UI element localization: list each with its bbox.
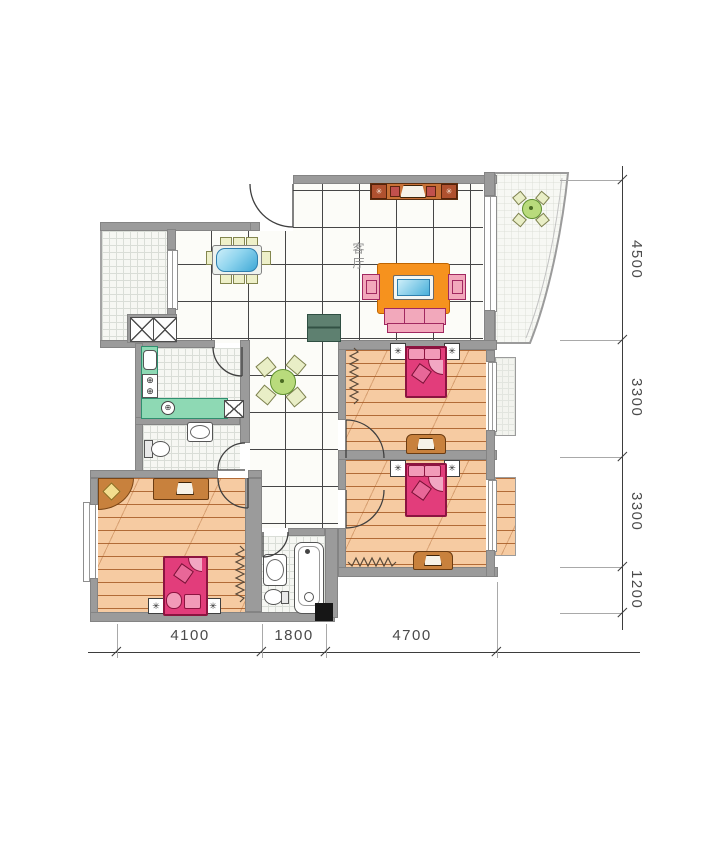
washing-machine-icon [130,317,154,342]
flower-icon: ✳ [448,464,456,473]
tv-icon [424,555,442,566]
bedroom1-bay-window [495,357,516,436]
tv-icon [400,185,426,198]
speaker-icon: ✳ [441,184,457,199]
bed-pillow [424,465,441,477]
dim-label-3300a: 3300 [628,358,645,438]
toilet-tank [281,591,289,604]
flower-icon: ✳ [152,602,160,611]
wall-bedroom3-left-upper [90,478,98,505]
bed-pillow [166,592,182,609]
dim-ext [560,567,622,568]
coffee-table-top [397,279,430,296]
nightstand: ✳ [390,343,406,360]
dim-label-4700: 4700 [372,627,452,644]
speaker-glyph: ✳ [446,188,453,196]
wall-bedroom3-top-stub [248,470,262,478]
armchair-cushion [366,280,377,294]
speaker-glyph: ✳ [376,188,383,196]
sofa-base [387,323,444,333]
wall-bedroom3-right [245,478,262,612]
wall-top-left [100,222,258,231]
bedroom1-window [488,362,497,432]
wall-bathroom2-top [288,528,325,536]
shoe-cabinet [307,314,341,342]
dim-ext [117,624,118,658]
wall-bedroom-right-c [486,550,495,577]
dim-label-4500: 4500 [628,220,645,300]
dining-table-top [216,248,258,272]
tv-icon [417,438,435,450]
speaker-icon: ✳ [371,184,387,199]
washbasin-bowl [266,559,284,581]
wall-living-right-top [484,172,495,196]
toilet-bowl [151,441,170,457]
bed-pillow [184,594,201,609]
kitchen-cabinet-icon [224,400,244,418]
living-room-window [484,196,497,312]
nightstand: ✳ [148,598,164,614]
dim-line-bottom [88,652,640,653]
dim-line-right [622,166,623,630]
bedroom2-bay-window [495,477,516,556]
dim-label-3300b: 3300 [628,472,645,552]
kitchen-sink [143,350,157,370]
burner-glyph: ⊕ [165,404,172,412]
balcony-table-center [529,206,533,210]
bathtub-faucet [305,549,310,554]
right-balcony [0,0,708,842]
bathtub-drain [304,592,314,602]
wall-living-right-bottom [484,310,495,343]
flower-icon: ✳ [394,347,402,356]
wall-balcony-divider-top [167,229,176,250]
living-room-label: 客厅 [350,242,367,286]
wall-bedrooms-left2 [338,458,346,490]
armchair-cushion [452,280,463,294]
washing-machine-icon [153,317,177,342]
dim-label-1200: 1200 [628,550,645,630]
nightstand: ✳ [390,460,406,477]
bed-pillow [408,465,425,477]
bedroom3-bay-window [83,502,96,582]
washbasin-bowl [190,425,210,439]
bedroom2-window [488,480,497,552]
floor-plan-canvas: ✳ ✳ 客厅 ⊕ ⊕ ⊕ [0,0,708,842]
dim-ext [560,613,622,614]
flower-icon: ✳ [209,602,217,611]
dim-label-1800: 1800 [254,627,334,644]
tv-icon [176,482,194,495]
wall-entry-stub [250,222,260,231]
flower-icon: ✳ [448,347,456,356]
wall-kitchen-right [240,340,250,443]
dim-ext [560,180,622,181]
kitchen-counter-horizontal [141,398,228,419]
dim-ext [497,582,498,658]
flower-icon: ✳ [394,464,402,473]
bed-pillow [424,348,441,360]
wall-bedrooms-left [338,340,346,420]
wall-bedroom3-top [90,470,218,478]
counter-hob-icon: ⊕ [161,401,175,415]
av-box [426,186,436,197]
round-table-center [280,379,284,383]
dim-ext [560,457,622,458]
bed-pillow [408,348,425,360]
balcony-window [167,250,178,310]
dim-ext [560,340,622,341]
burner-icon: ⊕ [146,376,154,385]
av-box [390,186,400,197]
column-marker [315,603,333,621]
wall-bedroom-right-a [486,350,495,362]
dim-label-4100: 4100 [150,627,230,644]
stove: ⊕ ⊕ [142,374,158,398]
wall-bedroom-right-b [486,430,495,480]
burner-icon: ⊕ [146,387,154,396]
